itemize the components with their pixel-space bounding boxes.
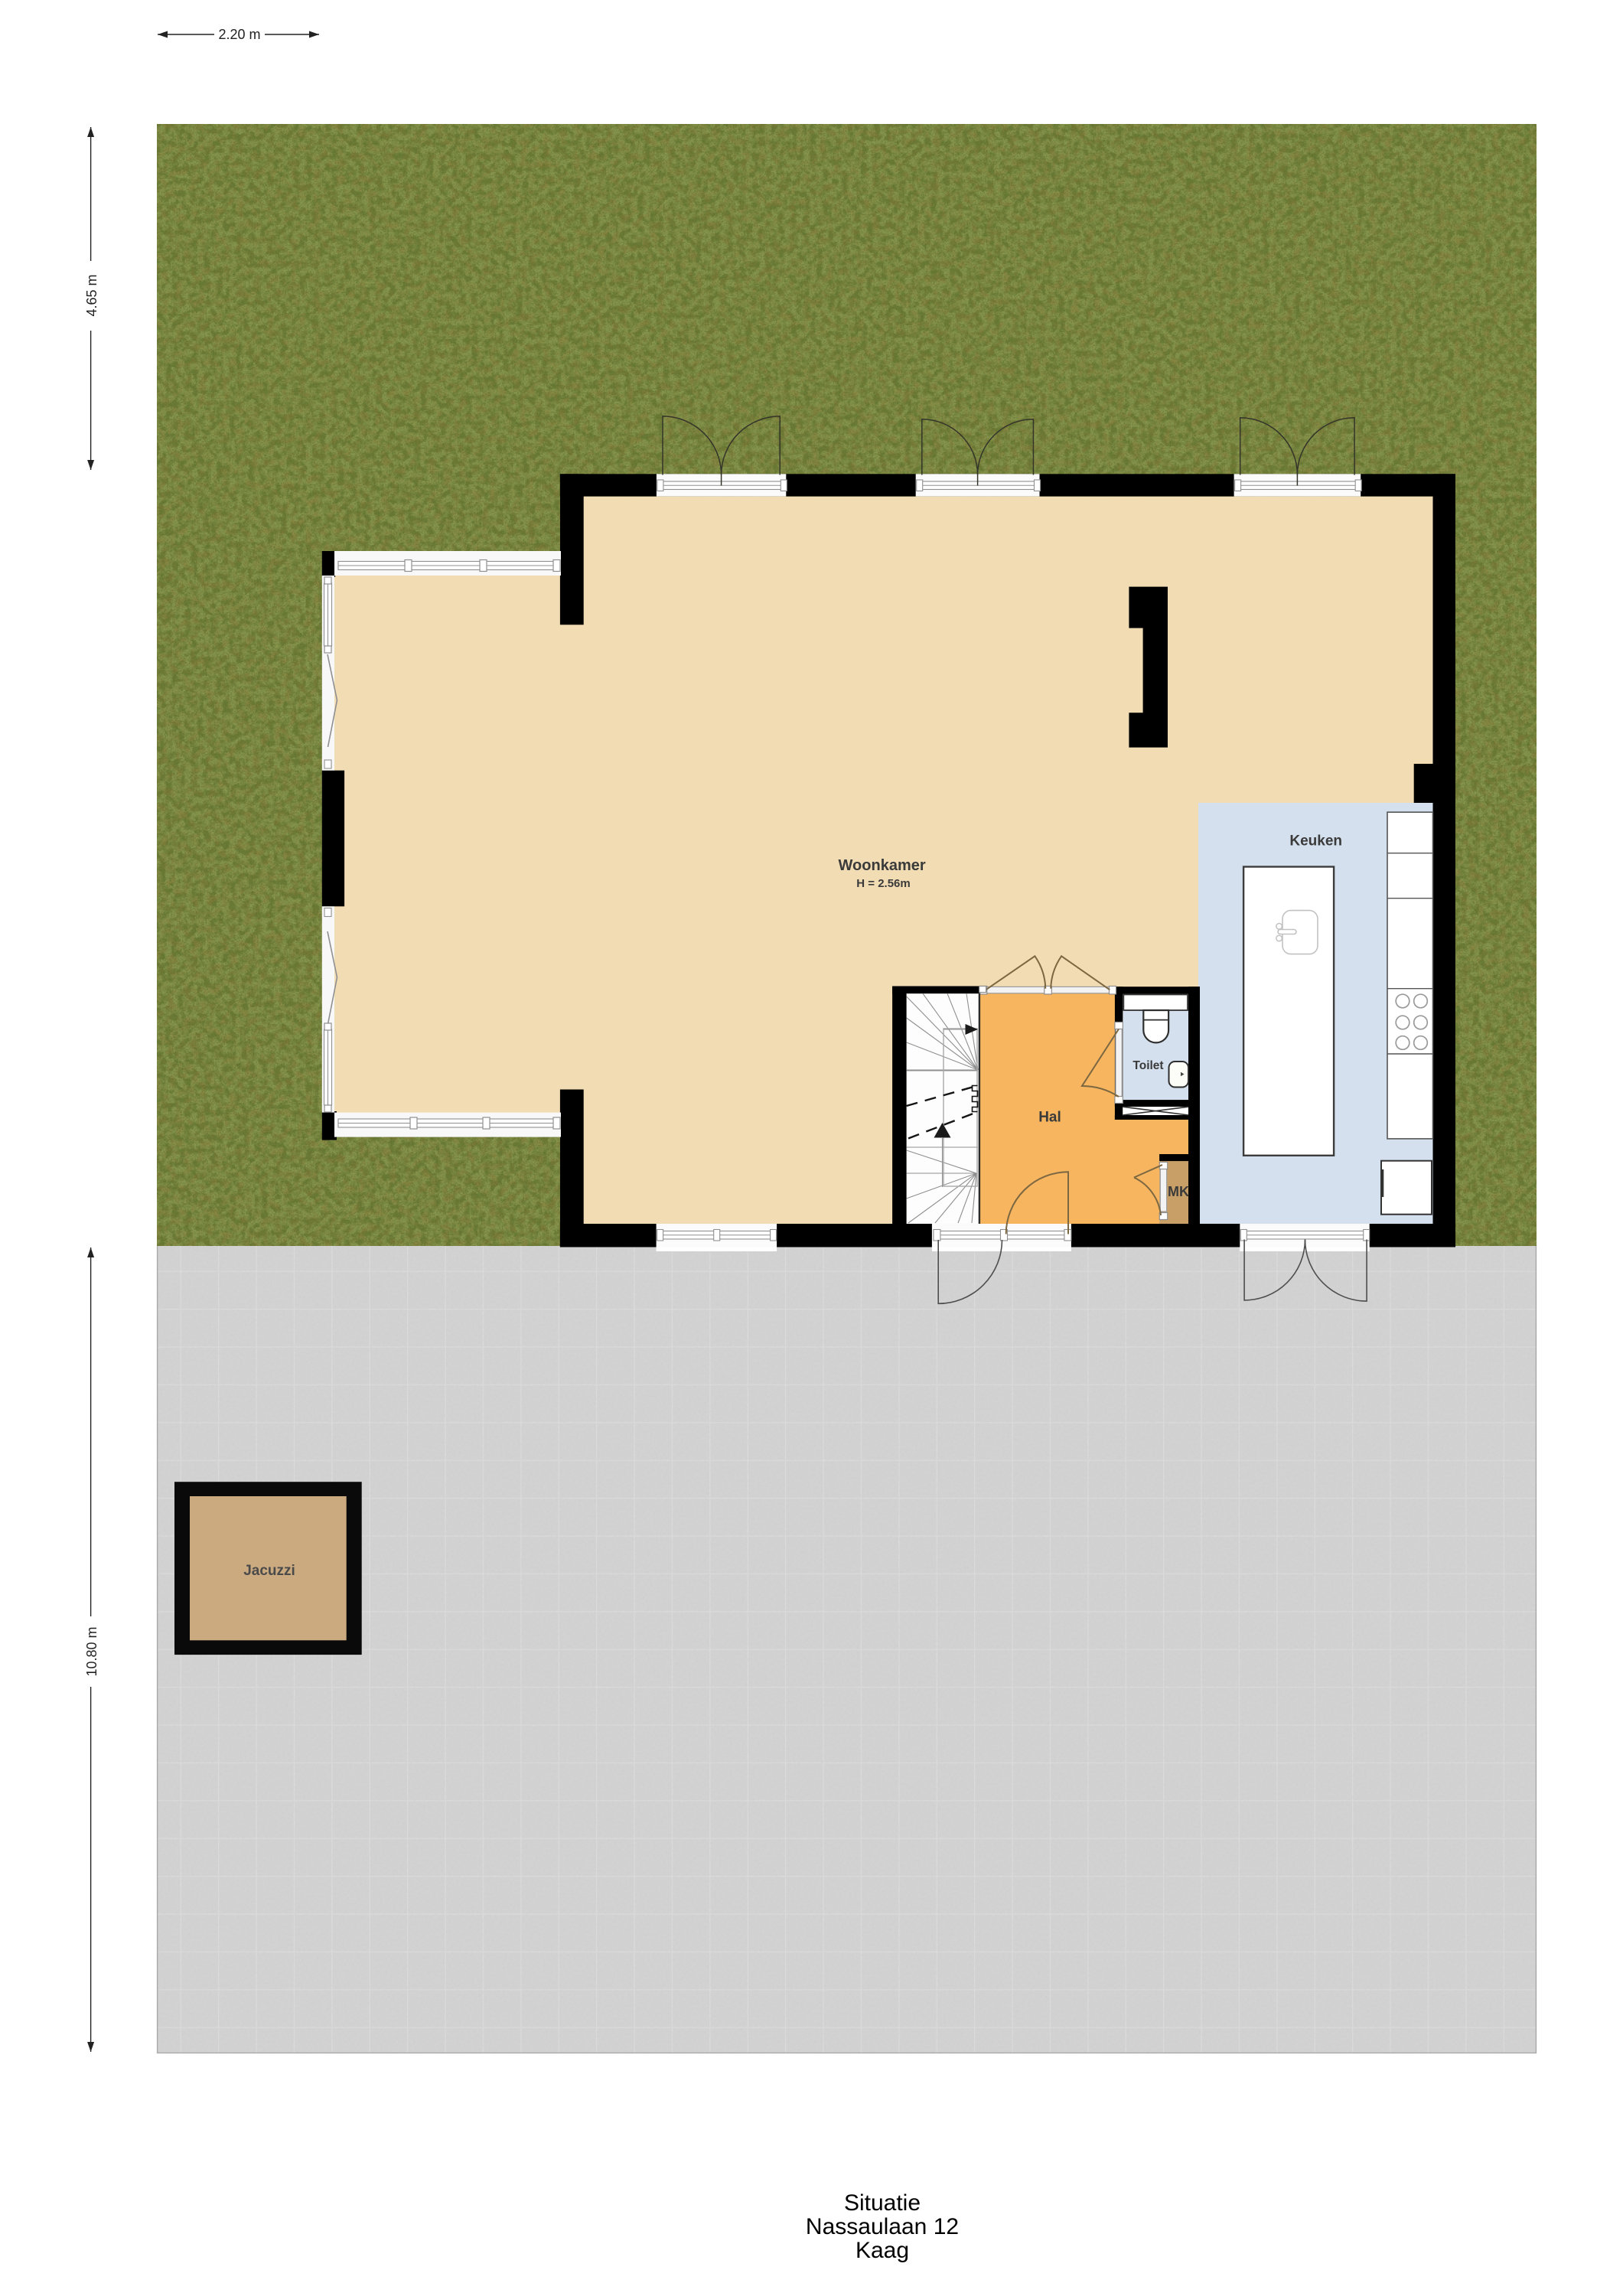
svg-text:2.20 m: 2.20 m: [218, 27, 260, 42]
svg-text:4.65 m: 4.65 m: [84, 274, 99, 316]
svg-text:MK: MK: [1168, 1184, 1189, 1199]
svg-text:Toilet: Toilet: [1133, 1059, 1163, 1072]
svg-text:10.80 m: 10.80 m: [84, 1626, 99, 1676]
svg-text:Jacuzzi: Jacuzzi: [243, 1563, 295, 1579]
svg-text:Woonkamer: Woonkamer: [839, 857, 926, 874]
svg-text:Nassaulaan 12: Nassaulaan 12: [806, 2214, 959, 2239]
svg-text:Hal: Hal: [1038, 1110, 1061, 1126]
svg-text:H = 2.56m: H = 2.56m: [856, 877, 910, 890]
svg-text:Kaag: Kaag: [855, 2238, 909, 2263]
svg-text:Keuken: Keuken: [1289, 833, 1342, 850]
svg-text:Situatie: Situatie: [844, 2190, 921, 2216]
